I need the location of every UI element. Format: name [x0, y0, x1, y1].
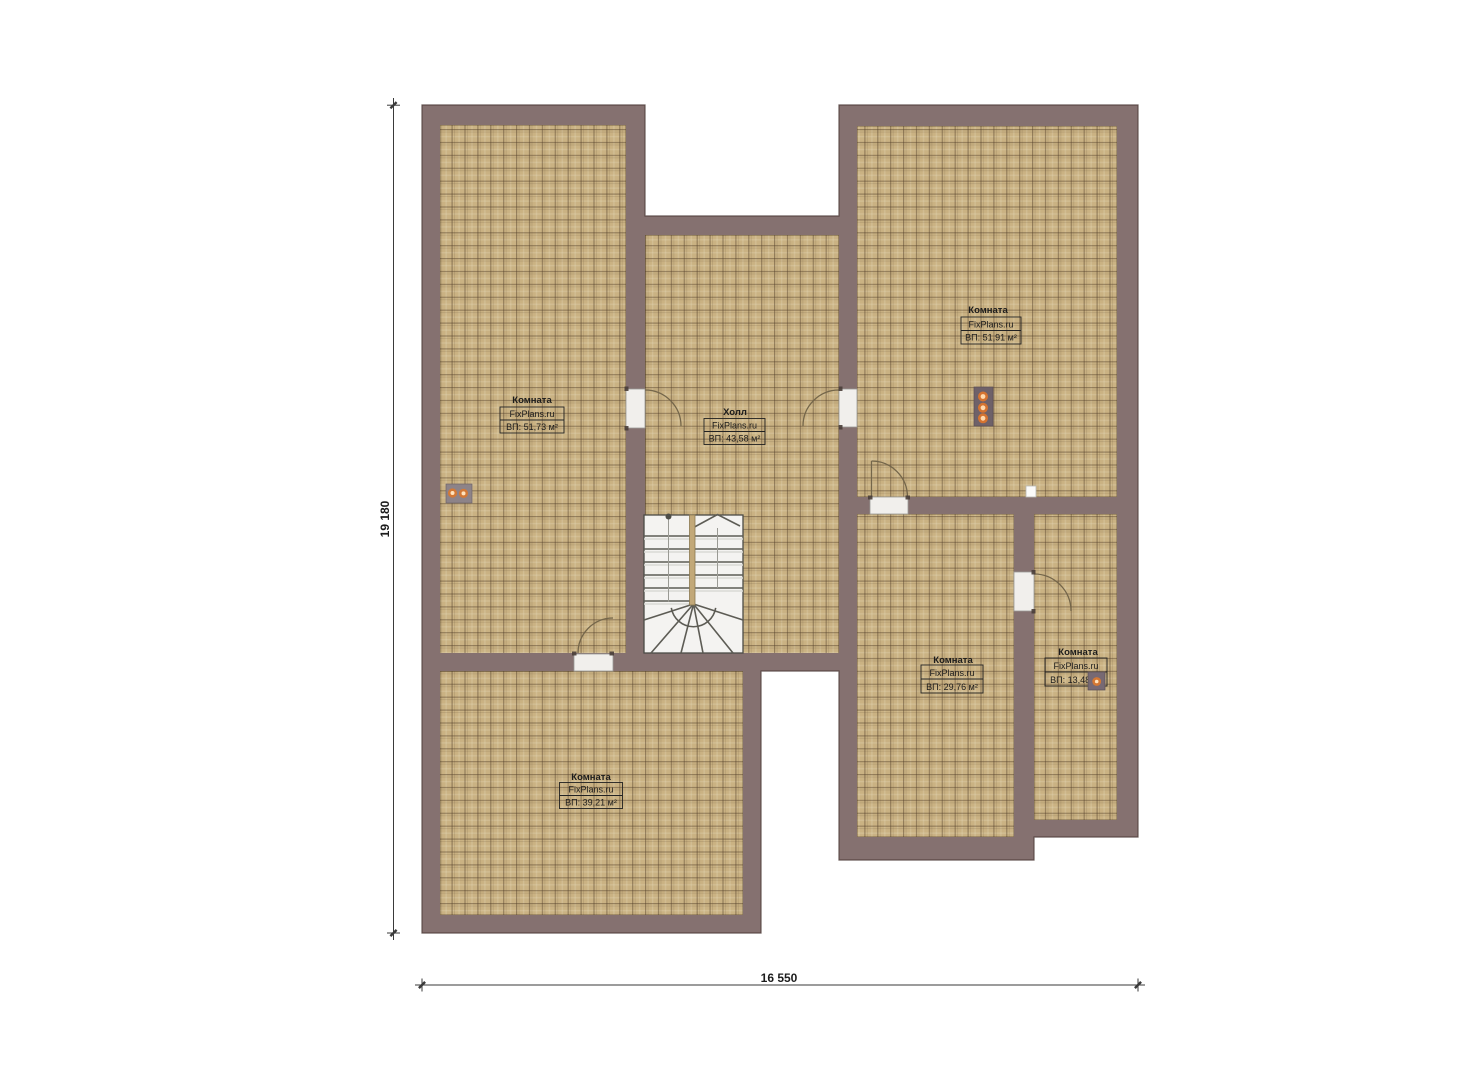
- svg-text:Комната: Комната: [1058, 647, 1098, 658]
- svg-text:19 180: 19 180: [378, 500, 392, 537]
- svg-text:ВП: 51,73 м²: ВП: 51,73 м²: [506, 422, 558, 432]
- svg-text:FixPlans.ru: FixPlans.ru: [1053, 661, 1098, 671]
- svg-text:Комната: Комната: [968, 305, 1008, 316]
- svg-text:ВП: 39,21 м²: ВП: 39,21 м²: [565, 798, 617, 808]
- svg-text:FixPlans.ru: FixPlans.ru: [929, 668, 974, 678]
- svg-text:ВП: 29,76 м²: ВП: 29,76 м²: [926, 682, 978, 692]
- svg-text:FixPlans.ru: FixPlans.ru: [568, 785, 613, 795]
- svg-text:ВП: 51,91 м²: ВП: 51,91 м²: [965, 333, 1017, 343]
- svg-text:Комната: Комната: [571, 772, 611, 783]
- svg-text:16 550: 16 550: [761, 971, 798, 985]
- svg-text:FixPlans.ru: FixPlans.ru: [968, 320, 1013, 330]
- svg-text:FixPlans.ru: FixPlans.ru: [509, 409, 554, 419]
- svg-text:Комната: Комната: [933, 655, 973, 666]
- svg-text:Холл: Холл: [723, 407, 747, 418]
- svg-text:Комната: Комната: [512, 395, 552, 406]
- svg-text:FixPlans.ru: FixPlans.ru: [712, 421, 757, 431]
- svg-text:ВП: 43,58 м²: ВП: 43,58 м²: [709, 434, 761, 444]
